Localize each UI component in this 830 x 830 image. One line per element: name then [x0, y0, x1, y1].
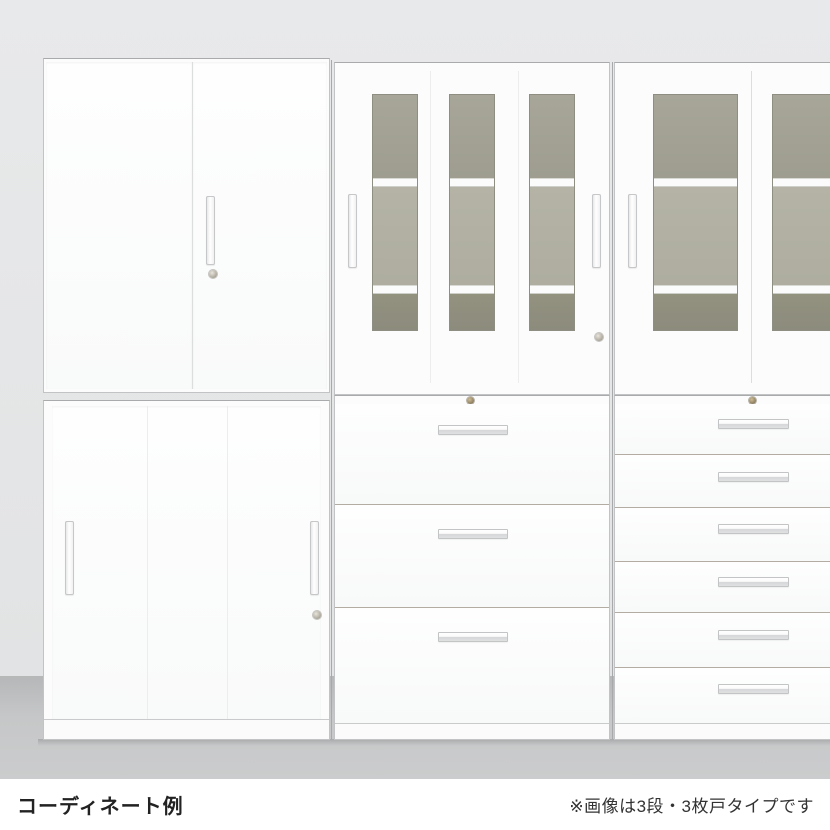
drawer — [615, 562, 830, 613]
glass-door-seam — [518, 71, 519, 383]
glass-pane-middle — [450, 187, 494, 285]
glass-window — [772, 94, 830, 331]
glass-pane-bottom — [654, 294, 737, 330]
glass-window — [449, 94, 495, 331]
glass-pane-middle — [530, 187, 574, 285]
unit-junction-seam — [612, 62, 613, 740]
sliding-door-handle-left — [65, 521, 74, 595]
glass-door-handle-left — [628, 194, 637, 268]
glass-door-handle-left — [348, 194, 357, 268]
drawer — [615, 404, 830, 455]
glass-pane-top — [373, 95, 417, 178]
shelf-edge — [450, 285, 494, 294]
cabinet-left-bottom-sliding-doors — [43, 400, 330, 740]
glass-pane-bottom — [450, 294, 494, 330]
drawer-handle — [718, 577, 789, 587]
shelf-edge — [773, 285, 830, 294]
cabinet-middle-top-glass-doors — [334, 62, 610, 395]
glass-door-seam — [430, 71, 431, 383]
door-handle — [206, 196, 215, 265]
keyhole-lock-icon — [595, 333, 603, 341]
drawer — [615, 668, 830, 723]
glass-pane-top — [654, 95, 737, 178]
hinged-door-left — [46, 62, 192, 389]
drawer — [615, 455, 830, 508]
drawer — [615, 508, 830, 562]
sliding-door-seam — [227, 406, 228, 719]
shelf-edge — [373, 285, 417, 294]
shelf-edge — [530, 178, 574, 187]
drawer-handle — [438, 632, 508, 642]
shelf-edge — [450, 178, 494, 187]
glass-pane-middle — [373, 187, 417, 285]
glass-pane-top — [450, 95, 494, 178]
drawer-stack — [615, 404, 830, 723]
glass-pane-middle — [654, 187, 737, 285]
keyhole-lock-icon — [209, 270, 217, 278]
product-photo: コーディネート例 ※画像は3段・3枚戸タイプです — [0, 0, 830, 830]
caption-title: コーディネート例 — [17, 790, 184, 819]
sliding-door-area — [52, 406, 321, 719]
door-divider — [192, 62, 193, 389]
unit-junction-seam — [331, 60, 332, 740]
drawer-stack — [335, 404, 609, 723]
sliding-door-seam — [147, 406, 148, 719]
glass-pane-top — [530, 95, 574, 178]
base-plinth — [615, 723, 830, 739]
shelf-edge — [654, 178, 737, 187]
cabinet-right-bottom-drawers — [614, 395, 830, 740]
drawer-handle — [438, 529, 508, 539]
cabinet-right-top-glass-doors — [614, 62, 830, 395]
drawer-handle — [718, 472, 789, 482]
glass-pane-bottom — [530, 294, 574, 330]
glass-window — [372, 94, 418, 331]
glass-door-handle-right — [592, 194, 601, 268]
shelf-edge — [773, 178, 830, 187]
glass-pane-bottom — [773, 294, 830, 330]
glass-pane-bottom — [373, 294, 417, 330]
glass-window — [529, 94, 575, 331]
caption-note: ※画像は3段・3枚戸タイプです — [569, 792, 814, 817]
keyhole-lock-icon — [467, 397, 474, 404]
keyhole-lock-icon — [749, 397, 756, 404]
drawer — [615, 613, 830, 668]
drawer-handle — [718, 419, 789, 429]
base-plinth — [335, 723, 609, 739]
sliding-door-handle-right — [310, 521, 319, 595]
glass-pane-top — [773, 95, 830, 178]
glass-pane-middle — [773, 187, 830, 285]
cabinet-left-top-hinged-doors — [43, 58, 330, 393]
drawer — [335, 608, 609, 723]
shelf-edge — [530, 285, 574, 294]
drawer-handle — [438, 425, 508, 435]
cabinet-floor-shadow — [38, 739, 830, 746]
drawer — [335, 505, 609, 608]
drawer-handle — [718, 630, 789, 640]
drawer-handle — [718, 524, 789, 534]
shelf-edge — [373, 178, 417, 187]
drawer-handle — [718, 684, 789, 694]
cabinet-middle-bottom-drawers — [334, 395, 610, 740]
base-plinth — [44, 719, 329, 739]
glass-door-seam — [751, 71, 752, 383]
glass-window — [653, 94, 738, 331]
keyhole-lock-icon — [313, 611, 321, 619]
drawer — [335, 404, 609, 505]
shelf-edge — [654, 285, 737, 294]
